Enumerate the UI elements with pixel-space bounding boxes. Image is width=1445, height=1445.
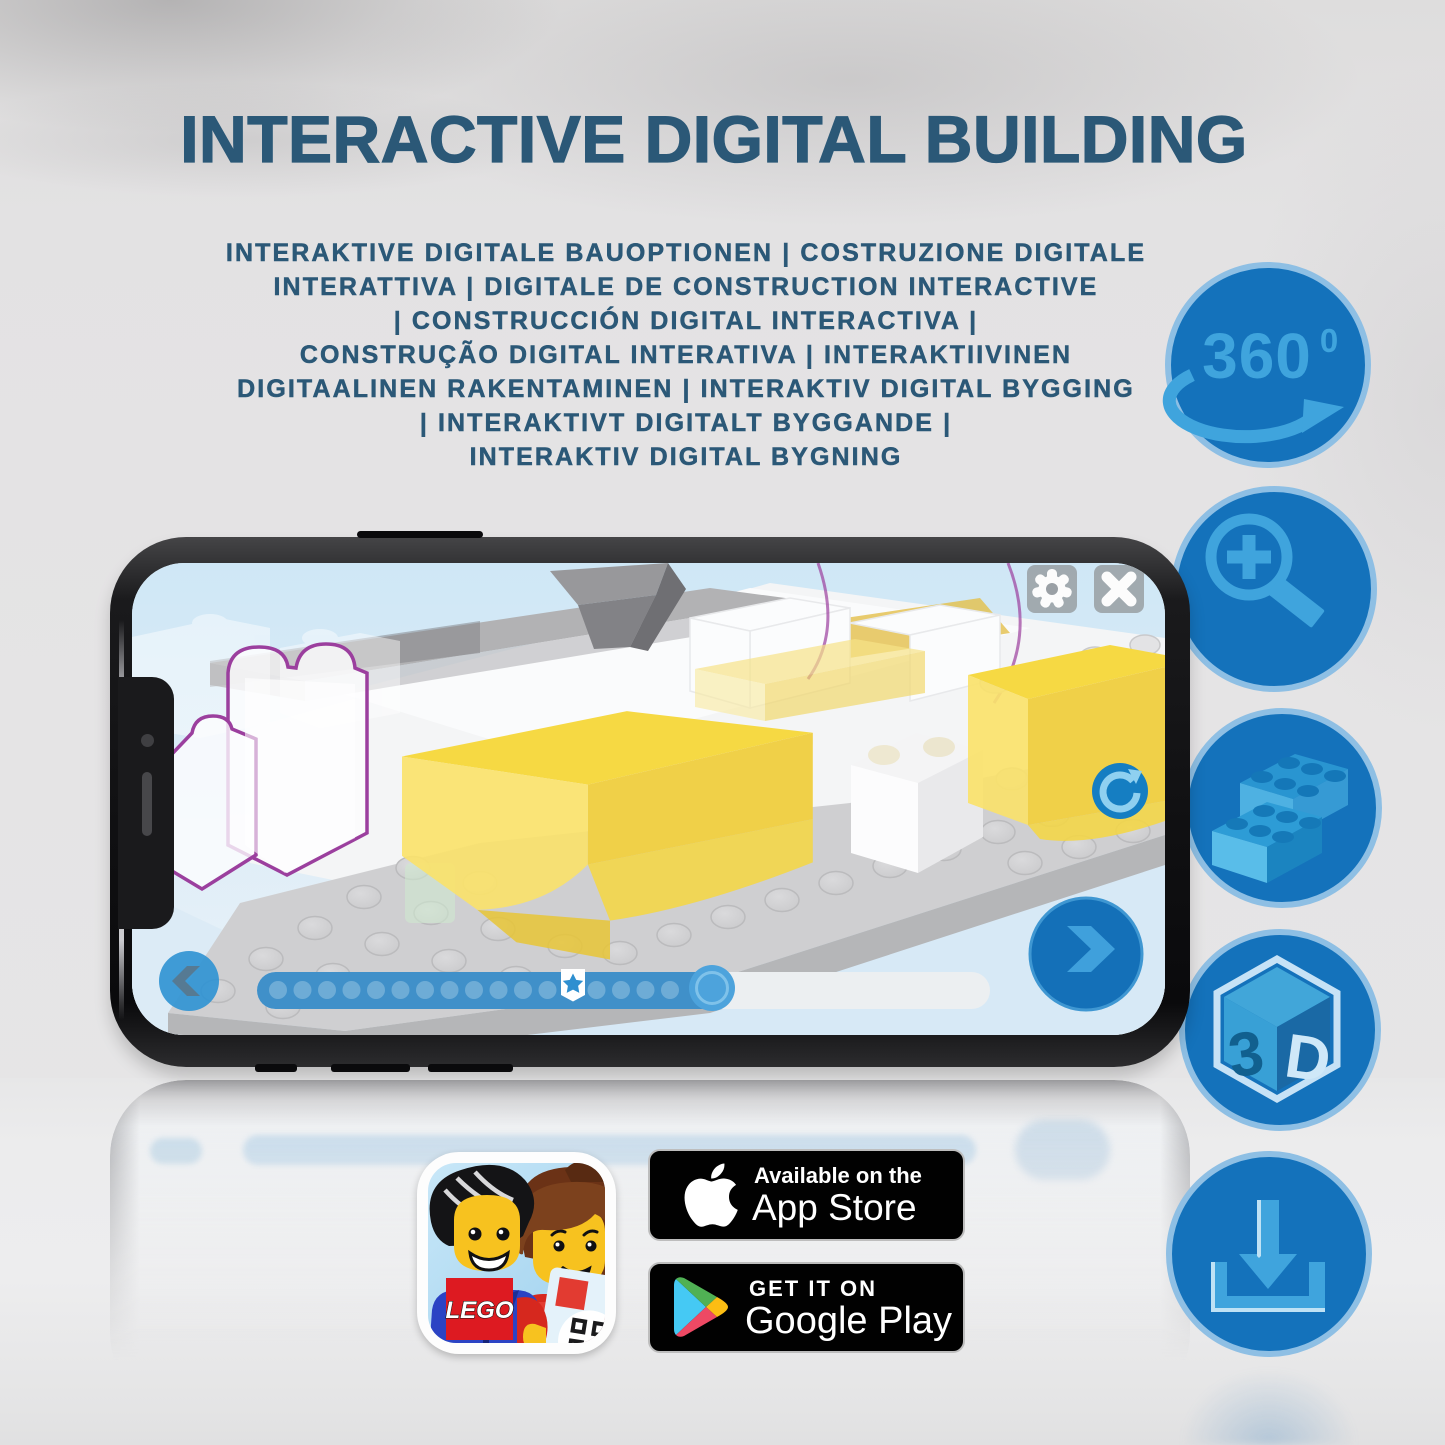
svg-text:Available on the: Available on the [754, 1163, 922, 1188]
svg-text:0: 0 [1320, 322, 1338, 359]
svg-text:App Store: App Store [752, 1187, 917, 1228]
svg-text:GET IT ON: GET IT ON [749, 1276, 877, 1301]
svg-text:LEGO: LEGO [445, 1297, 513, 1324]
svg-text:Google Play: Google Play [745, 1300, 952, 1342]
svg-text:D: D [1281, 1021, 1335, 1096]
svg-text:360: 360 [1202, 320, 1312, 392]
